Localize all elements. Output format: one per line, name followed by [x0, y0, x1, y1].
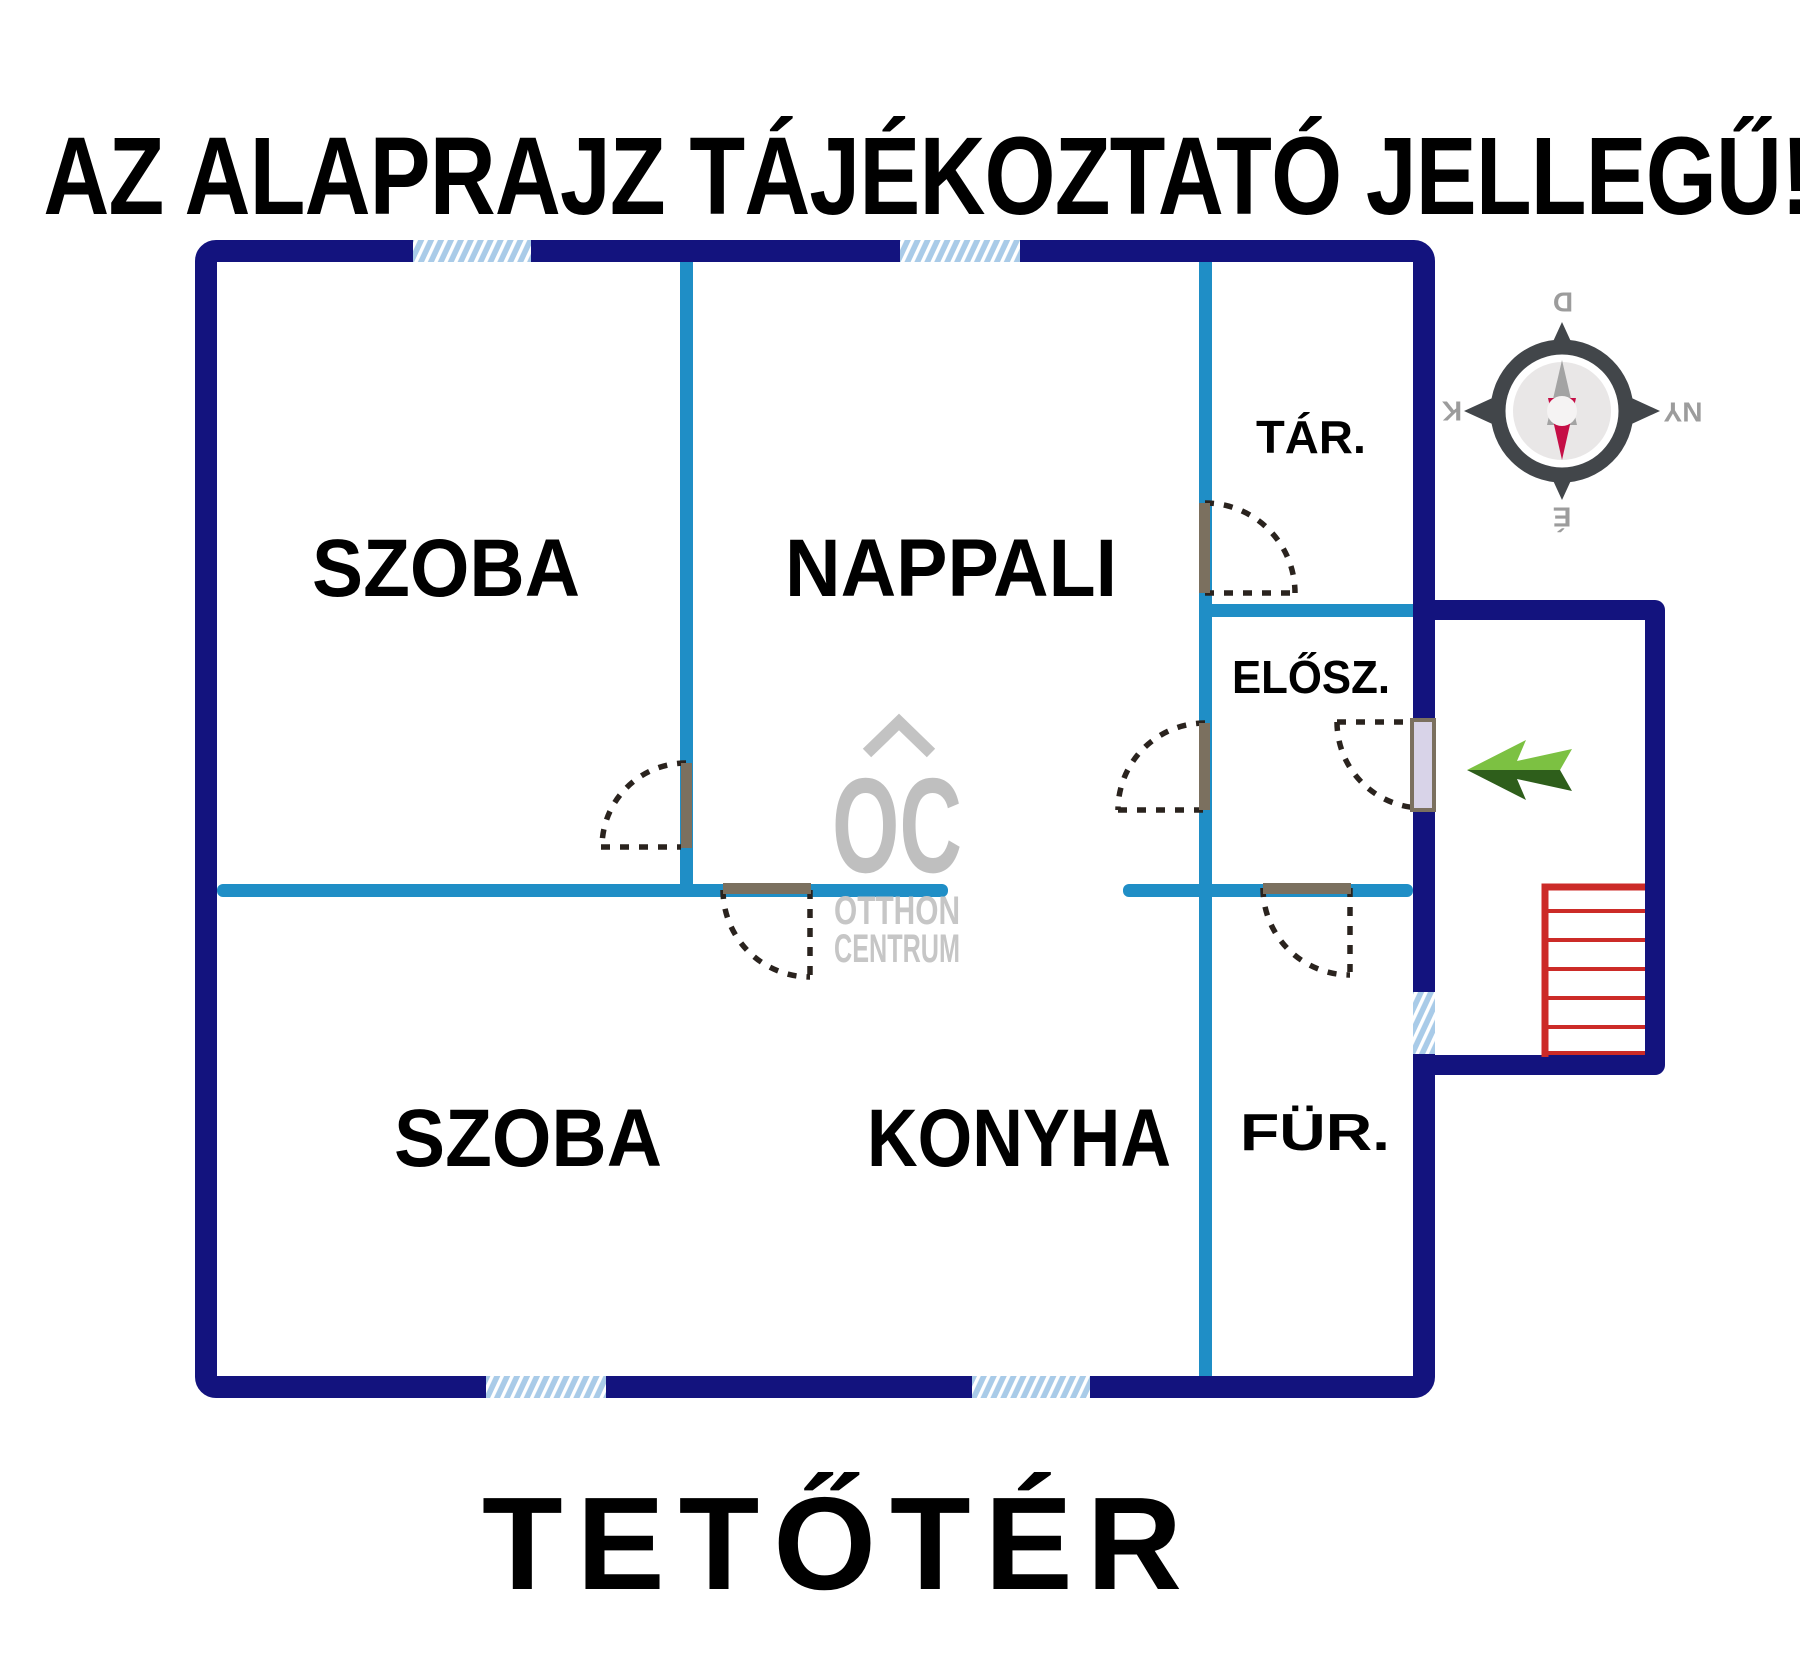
door-leaf-fur: [1263, 883, 1351, 894]
compass-label-bottom: É: [1553, 502, 1572, 533]
compass-hub: [1547, 396, 1577, 426]
room-label-fur: FÜR.: [1240, 1104, 1390, 1162]
watermark-monogram: OC: [832, 750, 962, 901]
compass-label-right: NY: [1663, 397, 1702, 428]
door-leaf-entrance: [1412, 720, 1434, 810]
watermark-line2: CENTRUM: [834, 927, 960, 971]
door-leaf-szoba-bottom: [723, 883, 811, 894]
room-label-elosz: ELŐSZ.: [1232, 651, 1390, 703]
outer-wall: [206, 251, 1424, 1387]
compass-label-top: D: [1553, 287, 1573, 318]
watermark-logo: OC OTTHON CENTRUM: [832, 722, 962, 971]
window-stairwell: [1413, 992, 1435, 1054]
window-bottom-left: [486, 1376, 606, 1398]
interior-wall-center-vertical: [1199, 262, 1212, 1376]
window-bottom-right: [972, 1376, 1090, 1398]
compass-label-left: K: [1442, 396, 1462, 427]
floorplan-page: AZ ALAPRAJZ TÁJÉKOZTATÓ JELLEGŰ!: [0, 0, 1800, 1680]
window-top-right: [900, 240, 1020, 262]
disclaimer-title: AZ ALAPRAJZ TÁJÉKOZTATÓ JELLEGŰ!: [43, 122, 1800, 232]
room-label-nappali: NAPPALI: [785, 523, 1117, 614]
door-leaf-tar: [1199, 503, 1210, 593]
room-label-konyha: KONYHA: [867, 1093, 1171, 1184]
compass-icon: D K NY É: [1442, 287, 1703, 533]
door-leaf-szoba-top: [681, 763, 692, 848]
room-label-szoba-bottom: SZOBA: [394, 1093, 662, 1184]
floor-label: TETŐTÉR: [482, 1478, 1196, 1610]
floorplan-drawing: OC OTTHON CENTRUM SZOBA NAPPALI TÁR. ELŐ…: [0, 0, 1800, 1680]
room-label-szoba-top: SZOBA: [312, 523, 580, 614]
interior-wall-tar-elosz: [1199, 604, 1413, 617]
door-leaf-elosz: [1199, 723, 1210, 810]
room-label-tar: TÁR.: [1256, 411, 1366, 463]
window-top-left: [413, 240, 531, 262]
